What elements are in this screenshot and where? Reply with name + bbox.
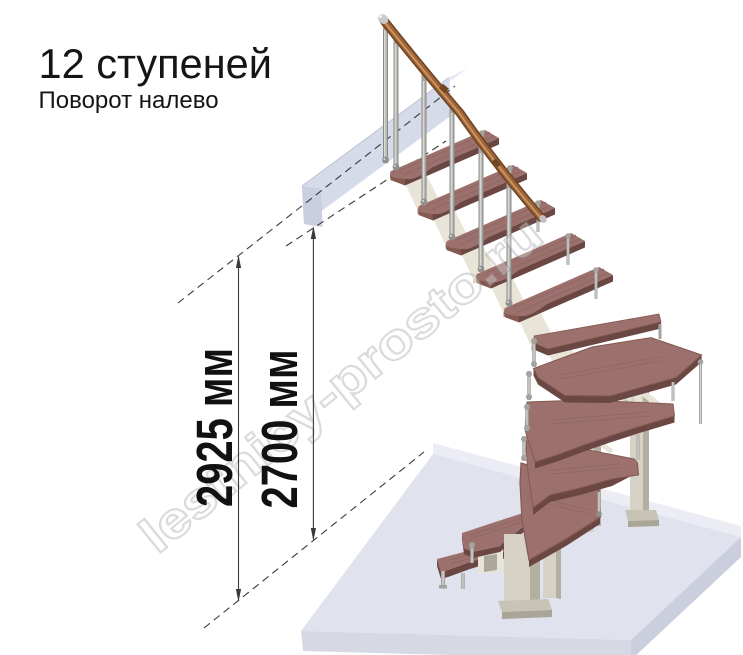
svg-text:2925 мм: 2925 мм [186,348,243,507]
svg-text:12 ступеней: 12 ступеней [39,40,272,87]
svg-text:Поворот налево: Поворот налево [39,87,219,114]
svg-text:2700 мм: 2700 мм [251,350,308,509]
